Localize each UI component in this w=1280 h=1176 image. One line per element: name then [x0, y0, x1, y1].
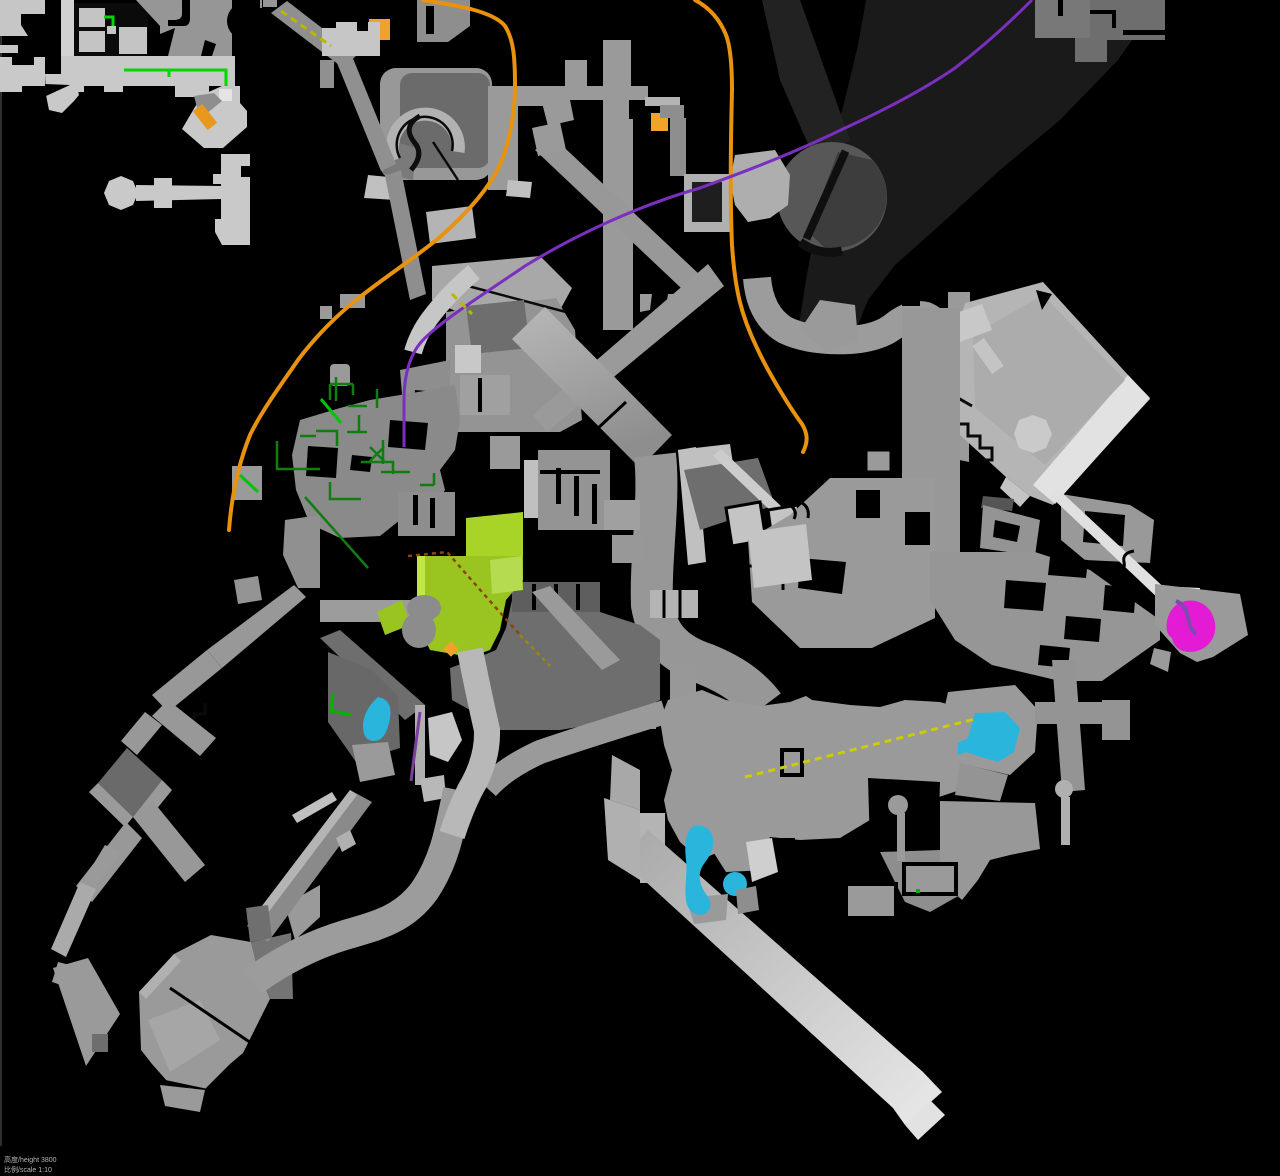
svg-text:高度/height 3800: 高度/height 3800 [4, 1155, 57, 1164]
svg-text:比例/scale 1:10: 比例/scale 1:10 [4, 1165, 52, 1174]
